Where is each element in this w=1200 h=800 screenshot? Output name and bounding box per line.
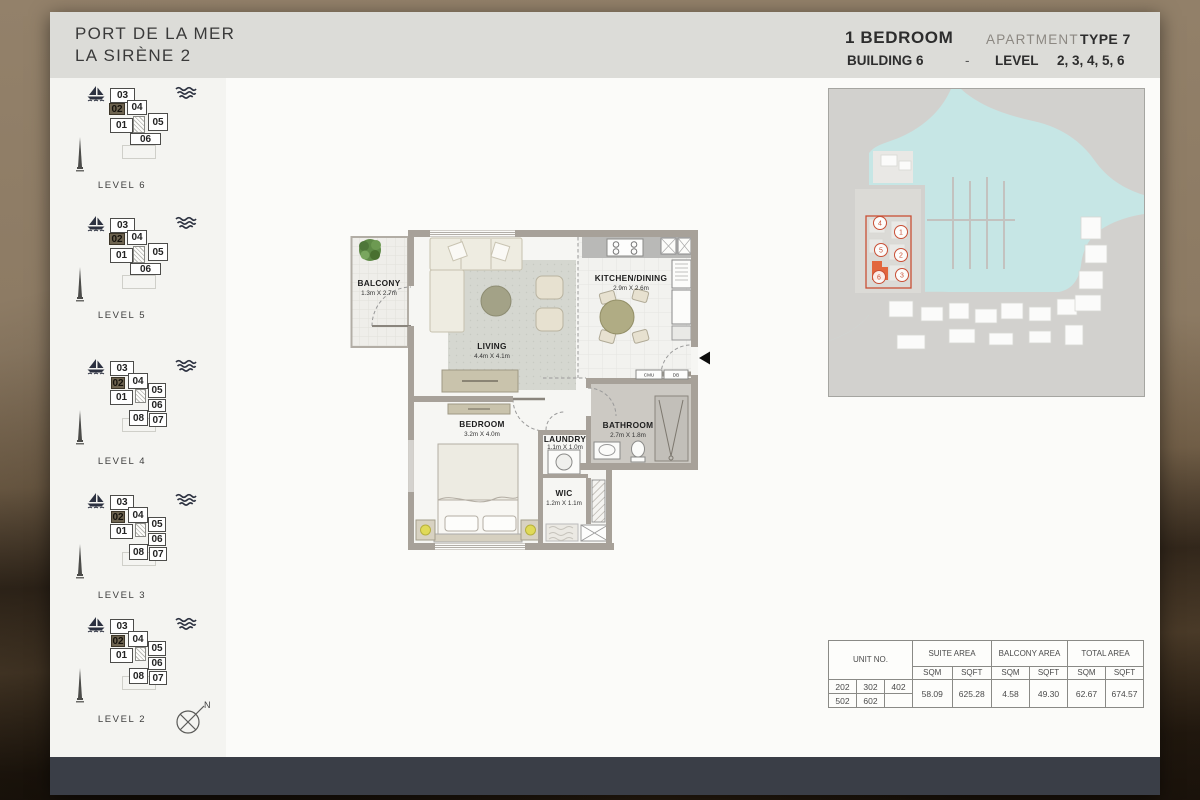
unit-box-06: 06 bbox=[148, 399, 166, 412]
unit-no: 502 bbox=[829, 694, 857, 708]
balcony-sqm: 4.58 bbox=[992, 680, 1030, 708]
spire-icon bbox=[75, 267, 85, 308]
unit-box-05: 05 bbox=[148, 641, 166, 656]
boat-icon bbox=[85, 358, 107, 380]
unit-type-label: 1 BEDROOM bbox=[845, 28, 953, 48]
balcony-label: BALCONY bbox=[357, 278, 400, 288]
col-balcony-area: BALCONY AREA bbox=[992, 641, 1068, 667]
plant-icon bbox=[359, 239, 381, 261]
unit-box-02: 02 bbox=[111, 377, 125, 389]
spire-icon bbox=[75, 410, 85, 451]
blanket bbox=[438, 444, 518, 500]
boat-icon bbox=[85, 616, 107, 638]
unit-box-07: 07 bbox=[149, 413, 167, 427]
building-marker-label: 1 bbox=[899, 229, 903, 236]
unit-box-02: 02 bbox=[111, 511, 125, 523]
level-label: LEVEL 3 bbox=[70, 590, 174, 601]
col-sqft: SQFT bbox=[1106, 667, 1144, 680]
headboard bbox=[434, 534, 522, 542]
unit-box-04: 04 bbox=[128, 373, 148, 389]
bedroom-label: BEDROOM bbox=[459, 419, 504, 429]
area-table: UNIT NO. SUITE AREA BALCONY AREA TOTAL A… bbox=[828, 640, 1144, 708]
unit-box-06: 06 bbox=[130, 133, 161, 145]
stairs-hatch bbox=[135, 523, 146, 537]
col-suite-area: SUITE AREA bbox=[913, 641, 992, 667]
unit-box-04: 04 bbox=[128, 507, 148, 523]
waves-icon bbox=[175, 216, 197, 234]
unit-box-01: 01 bbox=[110, 248, 133, 263]
laundry-dims: 1.1m X 1.0m bbox=[547, 444, 583, 451]
apartment-type-value: TYPE 7 bbox=[1080, 31, 1131, 47]
waves-icon bbox=[175, 493, 197, 511]
footer-bar bbox=[50, 757, 1160, 795]
building-marker-label: 6 bbox=[877, 274, 881, 281]
sofa bbox=[430, 238, 522, 270]
armchair bbox=[536, 276, 563, 299]
tall-cabinet bbox=[672, 290, 691, 324]
level-diagram-level-5: 030201040506LEVEL 5 bbox=[70, 215, 220, 333]
unit-box-01: 01 bbox=[110, 648, 133, 663]
building-marker-label: 4 bbox=[878, 220, 882, 227]
closet bbox=[592, 480, 605, 522]
unit-box-08: 08 bbox=[129, 544, 148, 560]
boat-icon bbox=[85, 85, 107, 107]
unit-box-02: 02 bbox=[109, 233, 125, 245]
col-sqm: SQM bbox=[992, 667, 1030, 680]
stairs-hatch bbox=[135, 647, 146, 661]
building-marker-label: 3 bbox=[900, 272, 904, 279]
building-name: LA SIRÈNE 2 bbox=[75, 45, 235, 67]
unit-box-08: 08 bbox=[129, 410, 148, 426]
unit-box-05: 05 bbox=[148, 243, 168, 261]
col-sqm: SQM bbox=[1068, 667, 1106, 680]
stove bbox=[607, 239, 643, 256]
bedroom-dims: 3.2m X 4.0m bbox=[464, 431, 500, 438]
unit-box-04: 04 bbox=[128, 631, 148, 647]
unit-no: 202 bbox=[829, 680, 857, 694]
total-sqft: 674.57 bbox=[1106, 680, 1144, 708]
unit-no: 302 bbox=[857, 680, 885, 694]
pillow bbox=[483, 516, 516, 531]
col-total-area: TOTAL AREA bbox=[1068, 641, 1144, 667]
toilet bbox=[632, 441, 645, 457]
waves-icon bbox=[175, 86, 197, 104]
separator-dash: - bbox=[965, 53, 970, 68]
unit-box-06: 06 bbox=[148, 657, 166, 670]
kitchen-label: KITCHEN/DINING bbox=[595, 273, 667, 283]
coffee-table bbox=[481, 286, 511, 316]
stairs-hatch bbox=[135, 389, 146, 403]
bathroom-dims: 2.7m X 1.8m bbox=[610, 432, 646, 439]
spire-icon bbox=[75, 544, 85, 585]
project-name: PORT DE LA MER bbox=[75, 23, 235, 45]
unit-box-06: 06 bbox=[130, 263, 161, 275]
header-band: PORT DE LA MER LA SIRÈNE 2 1 BEDROOM APA… bbox=[50, 12, 1160, 78]
stairs-hatch bbox=[133, 246, 145, 263]
building-label: BUILDING 6 bbox=[847, 53, 924, 68]
unit-box-07: 07 bbox=[149, 671, 167, 685]
level-label: LEVEL 2 bbox=[70, 714, 174, 725]
suite-sqft: 625.28 bbox=[952, 680, 992, 708]
level-label: LEVEL 6 bbox=[70, 180, 174, 191]
unit-box-04: 04 bbox=[127, 230, 147, 245]
brochure-page: PORT DE LA MER LA SIRÈNE 2 1 BEDROOM APA… bbox=[50, 12, 1160, 795]
compass-label: N bbox=[204, 700, 211, 710]
unit-no: 602 bbox=[857, 694, 885, 708]
suite-sqm: 58.09 bbox=[913, 680, 953, 708]
unit-box-02: 02 bbox=[111, 635, 125, 647]
total-sqm: 62.67 bbox=[1068, 680, 1106, 708]
unit-box-08: 08 bbox=[129, 668, 148, 684]
site-map: 123456 bbox=[828, 88, 1145, 397]
balcony-sqft: 49.30 bbox=[1030, 680, 1068, 708]
level-diagram-level-6: 030201040506LEVEL 6 bbox=[70, 85, 220, 203]
level-diagram-level-4: 0302010405060807LEVEL 4 bbox=[70, 358, 220, 476]
compass-icon: N bbox=[174, 702, 214, 741]
bathroom-label: BATHROOM bbox=[603, 420, 654, 430]
balcony-dims: 1.3m X 2.7m bbox=[361, 290, 397, 297]
apartment-label: APARTMENT bbox=[986, 32, 1079, 47]
spire-icon bbox=[75, 668, 85, 709]
photo-background: PORT DE LA MER LA SIRÈNE 2 1 BEDROOM APA… bbox=[0, 0, 1200, 800]
wic-label: WIC bbox=[555, 488, 572, 498]
unit-no: 402 bbox=[885, 680, 913, 694]
col-unit-no: UNIT NO. bbox=[829, 641, 913, 680]
entry-arrow-icon bbox=[699, 352, 710, 365]
building-marker-label: 2 bbox=[899, 252, 903, 259]
pillow bbox=[445, 516, 478, 531]
cmu-label: CMU bbox=[644, 373, 654, 378]
living-room bbox=[430, 238, 576, 390]
unit-box-01: 01 bbox=[110, 118, 133, 133]
floorplan: CMU DB BALCONY 1.3m X 2.7m LIVING 4.4m X… bbox=[350, 228, 712, 566]
unit-box-05: 05 bbox=[148, 383, 166, 398]
unit-box-01: 01 bbox=[110, 390, 133, 405]
level-label: LEVEL 4 bbox=[70, 456, 174, 467]
living-label: LIVING bbox=[477, 341, 506, 351]
level-label: LEVEL 5 bbox=[70, 310, 174, 321]
lamp bbox=[526, 525, 536, 535]
kitchen-dims: 2.9m X 2.6m bbox=[613, 285, 649, 292]
unit-box-05: 05 bbox=[148, 113, 168, 131]
boat-icon bbox=[85, 492, 107, 514]
living-dims: 4.4m X 4.1m bbox=[474, 353, 510, 360]
wic-dims: 1.2m X 1.1m bbox=[546, 500, 582, 507]
col-sqft: SQFT bbox=[1030, 667, 1068, 680]
waves-icon bbox=[175, 617, 197, 635]
db-label: DB bbox=[673, 373, 679, 378]
spire-icon bbox=[75, 137, 85, 178]
unit-no bbox=[885, 694, 913, 708]
unit-box-01: 01 bbox=[110, 524, 133, 539]
unit-box-05: 05 bbox=[148, 517, 166, 532]
col-sqft: SQFT bbox=[952, 667, 992, 680]
level-label: LEVEL bbox=[995, 53, 1039, 68]
levels-value: 2, 3, 4, 5, 6 bbox=[1057, 53, 1125, 68]
chaise bbox=[430, 270, 464, 332]
cabinet bbox=[672, 326, 691, 340]
building-marker-label: 5 bbox=[879, 247, 883, 254]
unit-box-02: 02 bbox=[109, 103, 125, 115]
unit-box-07: 07 bbox=[149, 547, 167, 561]
dining-table bbox=[600, 300, 634, 334]
unit-box-04: 04 bbox=[127, 100, 147, 115]
stairs-hatch bbox=[133, 116, 145, 133]
laundry-label: LAUNDRY bbox=[544, 434, 587, 444]
col-sqm: SQM bbox=[913, 667, 953, 680]
waves-icon bbox=[175, 359, 197, 377]
unit-box-06: 06 bbox=[148, 533, 166, 546]
sidebar: 030201040506LEVEL 6030201040506LEVEL 503… bbox=[50, 78, 226, 757]
armchair bbox=[536, 308, 563, 331]
boat-icon bbox=[85, 215, 107, 237]
level-diagram-level-3: 0302010405060807LEVEL 3 bbox=[70, 492, 220, 610]
page-title: PORT DE LA MER LA SIRÈNE 2 bbox=[75, 23, 235, 67]
lamp bbox=[421, 525, 431, 535]
